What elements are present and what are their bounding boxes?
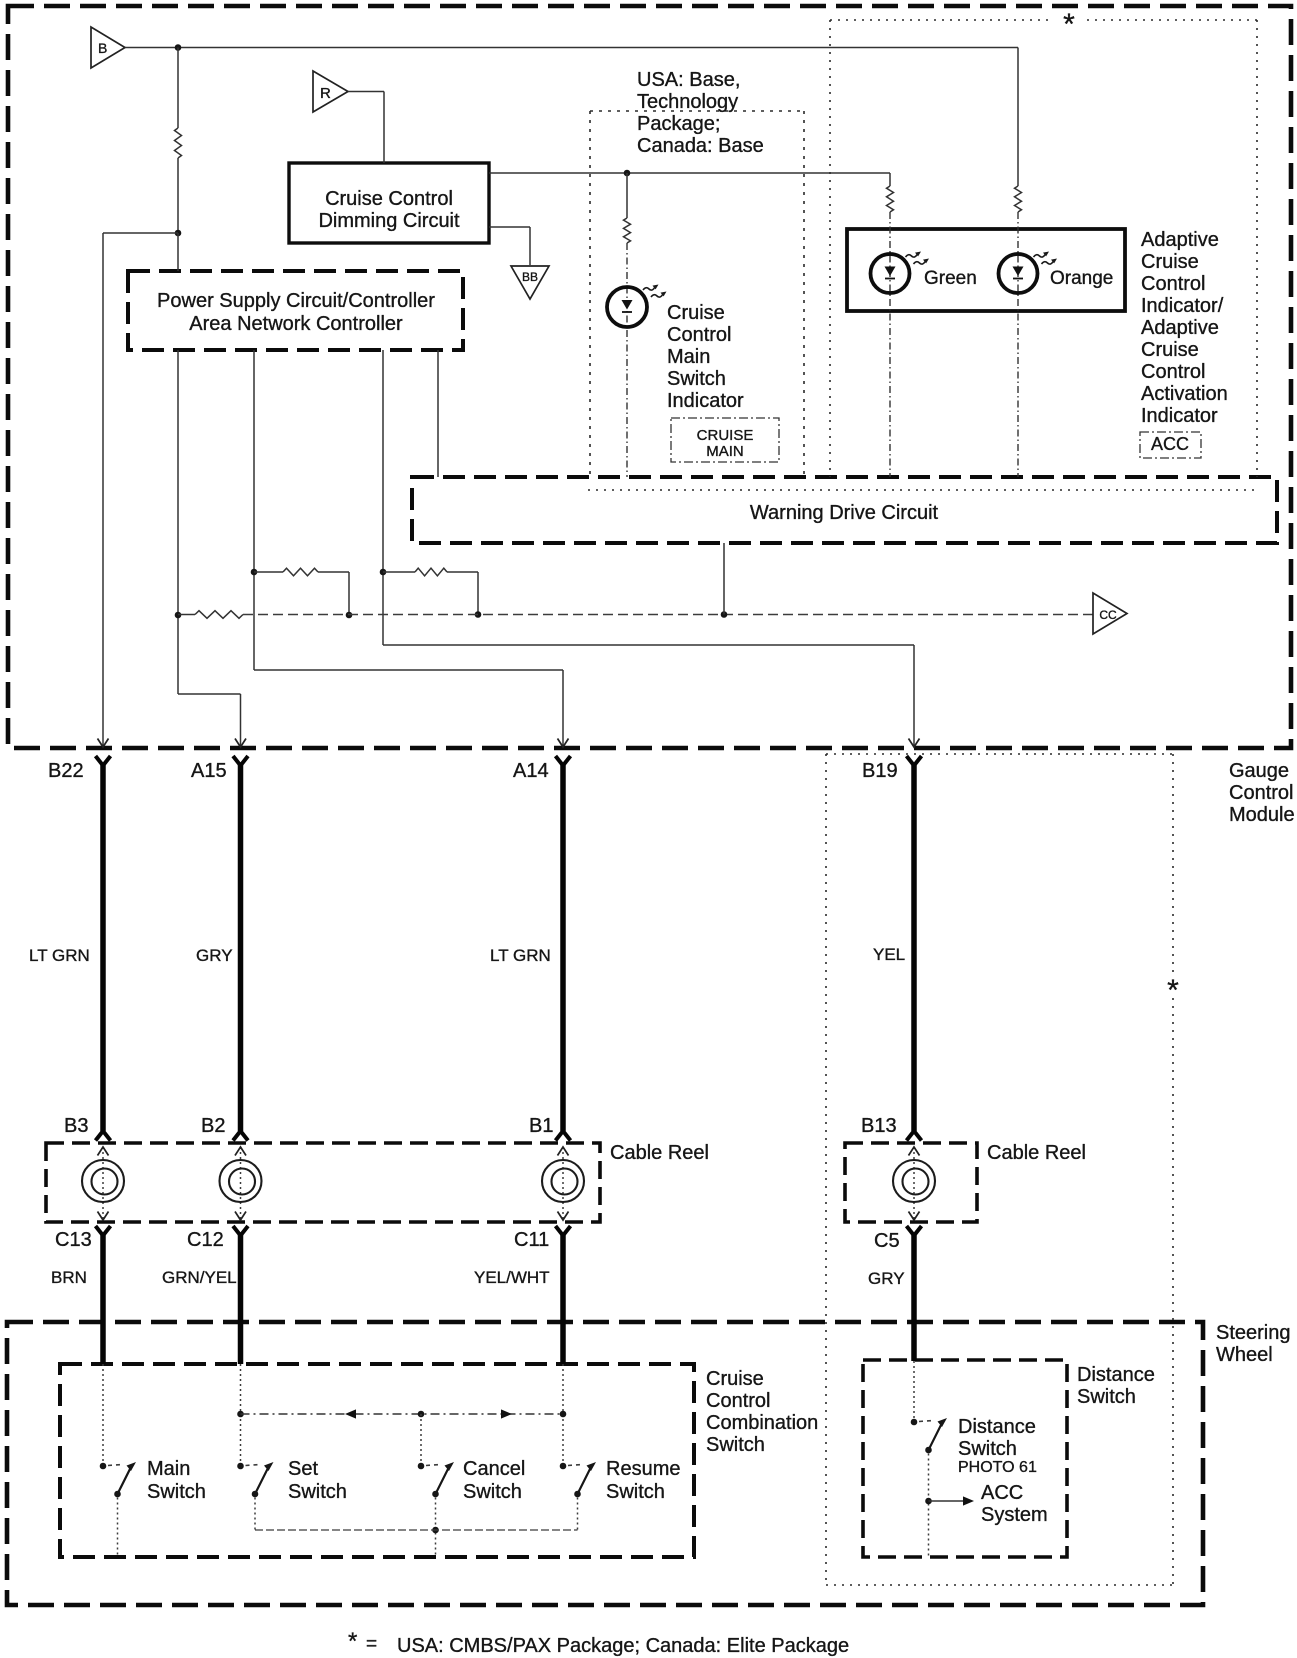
svg-text:Distance: Distance: [958, 1416, 1036, 1438]
svg-text:Switch: Switch: [288, 1481, 347, 1503]
svg-text:Steering: Steering: [1216, 1322, 1291, 1344]
svg-text:B1: B1: [529, 1115, 553, 1137]
svg-text:YEL/WHT: YEL/WHT: [474, 1268, 550, 1287]
svg-text:A15: A15: [191, 760, 227, 782]
svg-text:Switch: Switch: [958, 1438, 1017, 1460]
svg-text:ACC: ACC: [1151, 434, 1189, 454]
svg-text:Activation: Activation: [1141, 383, 1228, 405]
svg-text:Switch: Switch: [667, 368, 726, 390]
svg-text:Control: Control: [706, 1390, 770, 1412]
svg-text:Control: Control: [1229, 782, 1293, 804]
svg-text:*: *: [348, 1628, 357, 1655]
svg-text:Module: Module: [1229, 804, 1295, 826]
svg-text:GRN/YEL: GRN/YEL: [162, 1268, 237, 1287]
svg-text:Control: Control: [1141, 273, 1205, 295]
svg-text:USA: Base,: USA: Base,: [637, 69, 740, 91]
svg-text:System: System: [981, 1504, 1048, 1526]
svg-text:B: B: [98, 40, 107, 56]
svg-text:Power Supply Circuit/Controlle: Power Supply Circuit/Controller: [157, 290, 435, 312]
svg-text:Cruise Control: Cruise Control: [325, 188, 453, 210]
svg-text:Indicator: Indicator: [667, 390, 744, 412]
svg-text:Indicator: Indicator: [1141, 405, 1218, 427]
svg-text:Cancel: Cancel: [463, 1458, 525, 1480]
svg-text:*: *: [1063, 8, 1075, 41]
svg-text:C12: C12: [187, 1229, 224, 1251]
svg-text:Cruise: Cruise: [1141, 251, 1199, 273]
svg-text:Switch: Switch: [706, 1434, 765, 1456]
svg-text:Control: Control: [667, 324, 731, 346]
svg-text:B2: B2: [201, 1115, 225, 1137]
svg-text:Cable Reel: Cable Reel: [610, 1142, 709, 1164]
svg-text:Package;: Package;: [637, 113, 720, 135]
svg-text:Technology: Technology: [637, 91, 738, 113]
svg-text:Main: Main: [667, 346, 710, 368]
svg-text:BRN: BRN: [51, 1268, 87, 1287]
svg-text:B19: B19: [862, 760, 898, 782]
svg-text:=: =: [366, 1634, 377, 1655]
svg-text:Adaptive: Adaptive: [1141, 317, 1219, 339]
svg-text:B22: B22: [48, 760, 84, 782]
svg-text:Dimming Circuit: Dimming Circuit: [318, 210, 460, 232]
svg-text:Switch: Switch: [1077, 1386, 1136, 1408]
svg-text:Orange: Orange: [1050, 268, 1113, 289]
svg-text:CRUISE: CRUISE: [697, 427, 754, 444]
svg-text:Cruise: Cruise: [1141, 339, 1199, 361]
svg-text:Warning Drive Circuit: Warning Drive Circuit: [750, 502, 939, 524]
svg-text:Cable Reel: Cable Reel: [987, 1142, 1086, 1164]
svg-text:Combination: Combination: [706, 1412, 818, 1434]
svg-text:Distance: Distance: [1077, 1364, 1155, 1386]
svg-text:GRY: GRY: [196, 946, 233, 965]
svg-text:C5: C5: [874, 1230, 900, 1252]
svg-text:MAIN: MAIN: [706, 443, 744, 460]
svg-text:LT GRN: LT GRN: [29, 946, 90, 965]
svg-text:R: R: [320, 85, 331, 102]
svg-text:Canada: Base: Canada: Base: [637, 135, 764, 157]
svg-text:Main: Main: [147, 1458, 190, 1480]
svg-text:Indicator/: Indicator/: [1141, 295, 1224, 317]
svg-text:USA: CMBS/PAX Package; Canada:: USA: CMBS/PAX Package; Canada: Elite Pac…: [397, 1635, 849, 1657]
svg-text:Resume: Resume: [606, 1458, 680, 1480]
svg-text:C11: C11: [514, 1229, 549, 1251]
svg-text:B3: B3: [64, 1115, 88, 1137]
svg-text:C13: C13: [55, 1229, 92, 1251]
svg-text:Switch: Switch: [147, 1481, 206, 1503]
svg-text:PHOTO 61: PHOTO 61: [958, 1459, 1037, 1476]
svg-text:Switch: Switch: [606, 1481, 665, 1503]
svg-text:Set: Set: [288, 1458, 318, 1480]
svg-text:Green: Green: [924, 268, 977, 289]
svg-text:B13: B13: [861, 1115, 897, 1137]
svg-text:Wheel: Wheel: [1216, 1344, 1273, 1366]
svg-text:YEL: YEL: [873, 945, 905, 964]
svg-text:Control: Control: [1141, 361, 1205, 383]
svg-text:BB: BB: [522, 270, 538, 284]
svg-text:ACC: ACC: [981, 1482, 1023, 1504]
svg-text:Cruise: Cruise: [667, 302, 725, 324]
svg-text:LT GRN: LT GRN: [490, 946, 551, 965]
svg-text:CC: CC: [1099, 608, 1117, 622]
svg-text:GRY: GRY: [868, 1269, 905, 1288]
svg-text:Adaptive: Adaptive: [1141, 229, 1219, 251]
svg-text:Area Network Controller: Area Network Controller: [189, 313, 403, 335]
svg-text:Gauge: Gauge: [1229, 760, 1289, 782]
svg-text:A14: A14: [513, 760, 549, 782]
svg-text:Cruise: Cruise: [706, 1368, 764, 1390]
svg-text:Switch: Switch: [463, 1481, 522, 1503]
svg-text:*: *: [1167, 974, 1179, 1007]
